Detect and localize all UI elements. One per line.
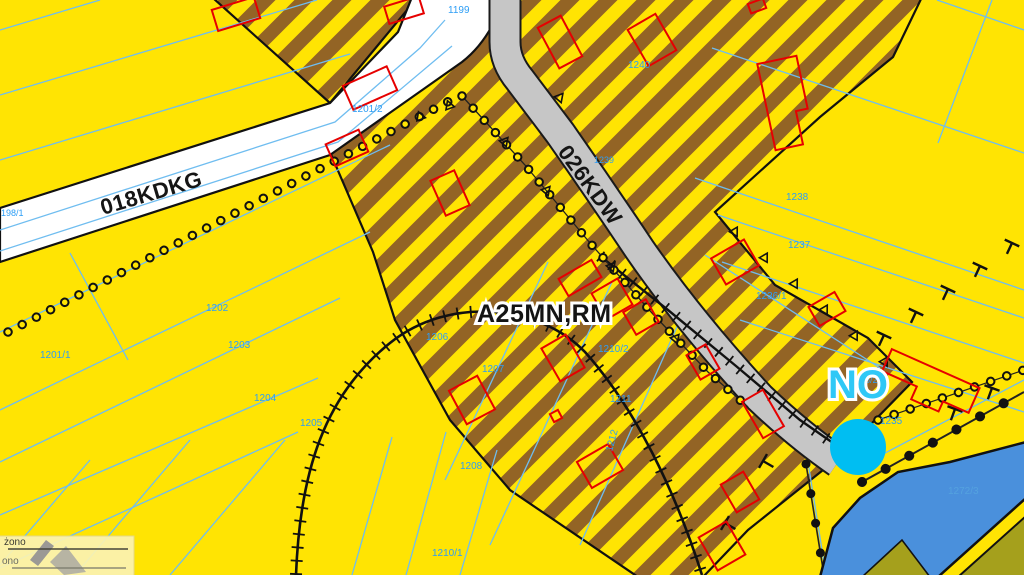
zoning-map: 198/1 1199 1201/2 1201/1 1202 1203 1204 … (0, 0, 1024, 575)
parcel-label: 1240 (628, 60, 651, 71)
zone-label: A25MN,RM (477, 300, 612, 328)
parcel-label: 1201/2 (352, 104, 383, 115)
stamp-overlay: żono ono (0, 536, 134, 575)
stamp-text: ono (2, 556, 19, 567)
stamp-text: żono (4, 537, 26, 548)
parcel-label: 1235 (880, 416, 903, 427)
parcel-label: 1210/2 (598, 344, 629, 355)
map-canvas[interactable]: 198/1 1199 1201/2 1201/1 1202 1203 1204 … (0, 0, 1024, 575)
parcel-label: 1206 (426, 332, 449, 343)
parcel-label: 1236/1 (756, 291, 787, 302)
parcel-label: 1205 (300, 418, 323, 429)
parcel-label: 1201/1 (40, 350, 71, 361)
parcel-label-water: 1272/3 (948, 486, 979, 497)
parcel-label: 1203 (228, 340, 251, 351)
parcel-label: 1199 (448, 5, 470, 16)
parcel-label: 1208 (460, 461, 483, 472)
parcel-label: 1238 (786, 192, 809, 203)
parcel-label: 1202 (206, 303, 229, 314)
parcel-label: 1237 (788, 240, 811, 251)
parcel-label: 1239 (594, 155, 614, 165)
parcel-label: 198/1 (1, 208, 24, 218)
parcel-label: 1211 (610, 394, 632, 405)
parcel-label: 1207 (482, 364, 505, 375)
parcel-label: 1210/1 (432, 548, 463, 559)
no-marker-label: NO (828, 363, 888, 407)
parcel-label: 1204 (254, 393, 277, 404)
no-marker-circle[interactable] (830, 419, 886, 475)
